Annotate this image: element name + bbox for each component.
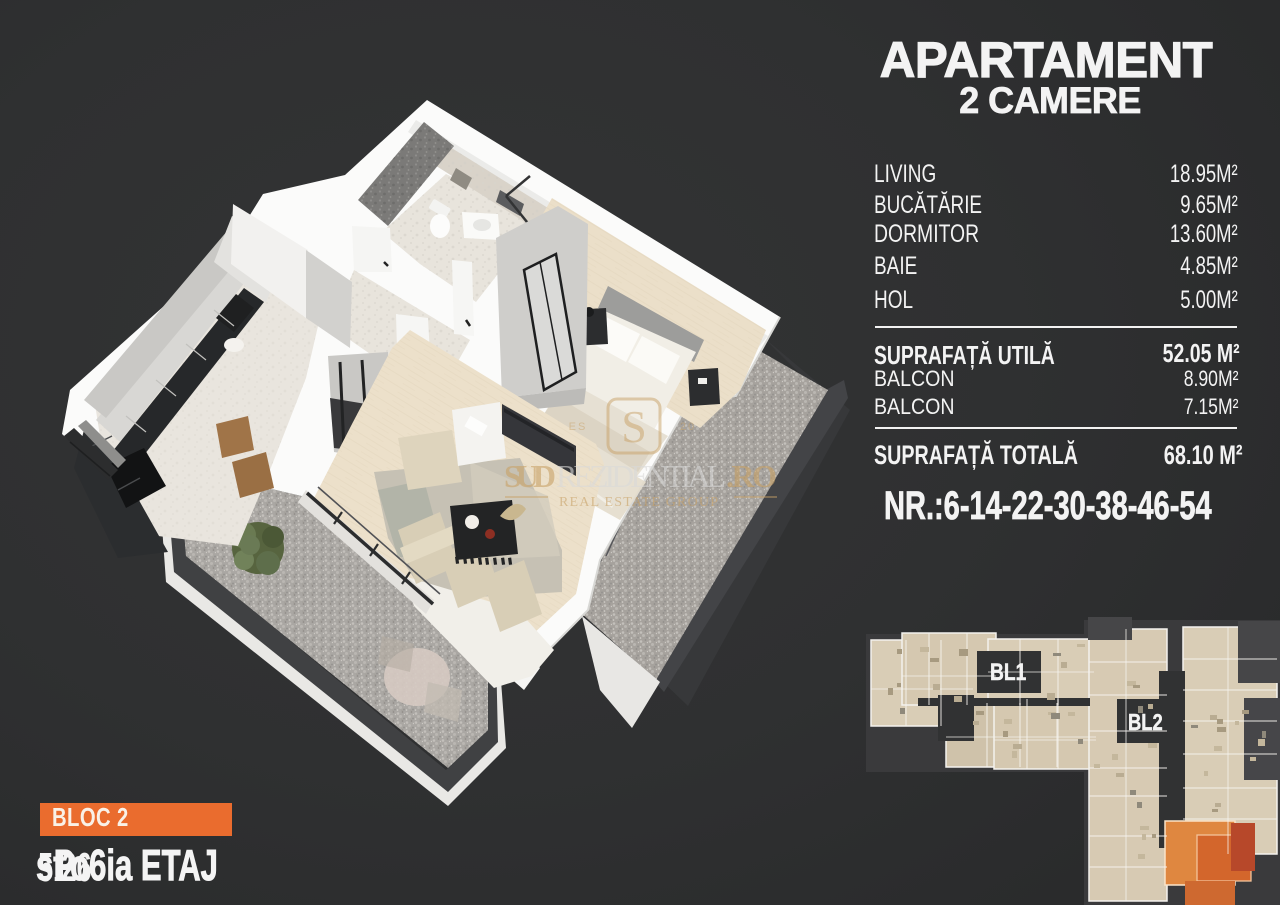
- svg-text:20: 20: [680, 421, 696, 433]
- svg-text:SUD: SUD: [504, 458, 556, 494]
- svg-text:S: S: [621, 401, 647, 452]
- svg-text:ES: ES: [569, 421, 588, 433]
- svg-text:.RO: .RO: [726, 458, 777, 494]
- svg-text:REZIDENTIAL: REZIDENTIAL: [556, 458, 726, 494]
- svg-text:REAL ESTATE GROUP: REAL ESTATE GROUP: [559, 495, 722, 510]
